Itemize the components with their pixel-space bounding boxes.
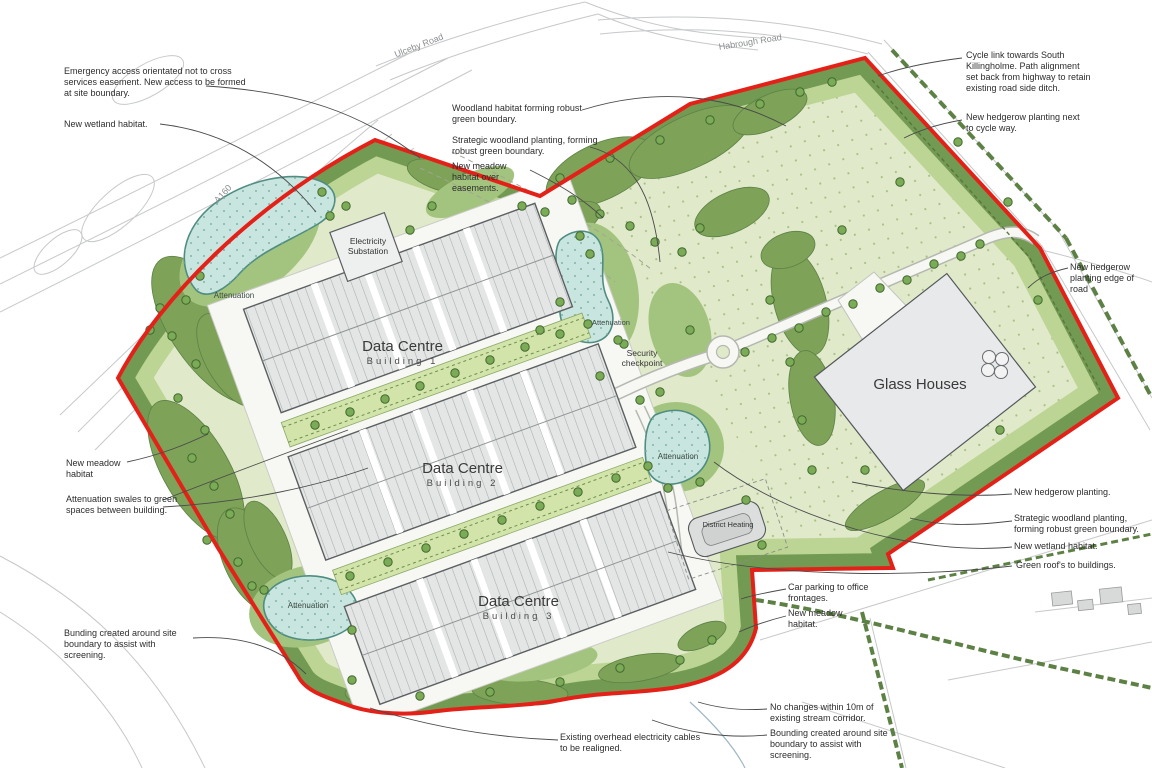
annotation-woodland-habitat: Woodland habitat forming robust green bo… (452, 103, 582, 125)
annotation-meadow-easements: New meadow habitat over easements. (452, 161, 532, 194)
annotation-overhead-cables: Existing overhead electricity cables to … (560, 732, 705, 754)
annotation-hedgerow-right: New hedgerow planting. (1014, 487, 1144, 498)
annotation-strategic-woodland-right: Strategic woodland planting, forming rob… (1014, 513, 1152, 535)
annotation-hedgerow-cycle: New hedgerow planting next to cycle way. (966, 112, 1086, 134)
dc3-title: Data Centre (456, 593, 581, 610)
substation-line1: Electricity (350, 236, 386, 246)
pond-label-central: Attenuation (585, 318, 637, 327)
annotation-strategic-woodland-top: Strategic woodland planting, forming rob… (452, 135, 602, 157)
dc1-subtitle: Building 1 (340, 356, 465, 367)
roundabout (707, 336, 739, 368)
annotation-attenuation-swales: Attenuation swales to green spaces betwe… (66, 494, 181, 516)
annotation-bounding-bottom: Bounding created around site boundary to… (770, 728, 895, 761)
label-data-centre-3: Data Centre Building 3 (456, 593, 581, 622)
annotation-hedgerow-road-edge: New hedgerow planting edge of road (1070, 262, 1150, 295)
annotation-stream-corridor: No changes within 10m of existing stream… (770, 702, 905, 724)
annotation-green-roofs: Green roof's to buildings. (1016, 560, 1146, 571)
security-line2: checkpoint (622, 358, 663, 368)
site-masterplan: Ulceby Road Habrough Road A160 Data Cent… (0, 0, 1152, 768)
label-glass-houses: Glass Houses (855, 376, 985, 393)
annotation-emergency-access: Emergency access orientated not to cross… (64, 66, 249, 99)
security-line1: Security (627, 348, 658, 358)
label-data-centre-1: Data Centre Building 1 (340, 338, 465, 367)
pond-label-east: Attenuation (648, 452, 708, 461)
annotation-wetland-right: New wetland habitat. (1014, 541, 1134, 552)
dc2-title: Data Centre (400, 460, 525, 477)
annotation-meadow-bottom: New meadow habitat. (788, 608, 868, 630)
substation-line2: Substation (348, 246, 388, 256)
label-data-centre-2: Data Centre Building 2 (400, 460, 525, 489)
label-substation: Electricity Substation (338, 236, 398, 256)
annotation-meadow-left: New meadow habitat (66, 458, 141, 480)
pond-label-southwest: Attenuation (278, 601, 338, 610)
annotation-cycle-link: Cycle link towards South Killingholme. P… (966, 50, 1094, 94)
annotation-bunding-left: Bunding created around site boundary to … (64, 628, 189, 661)
dc1-title: Data Centre (340, 338, 465, 355)
label-security-checkpoint: Security checkpoint (606, 348, 678, 368)
annotation-wetland-left: New wetland habitat. (64, 119, 184, 130)
annotation-car-parking: Car parking to office frontages. (788, 582, 883, 604)
dc3-subtitle: Building 3 (456, 611, 581, 622)
pond-label-northwest: Attenuation (203, 291, 265, 300)
dc2-subtitle: Building 2 (400, 478, 525, 489)
label-district-heating: District Heating (693, 520, 763, 529)
